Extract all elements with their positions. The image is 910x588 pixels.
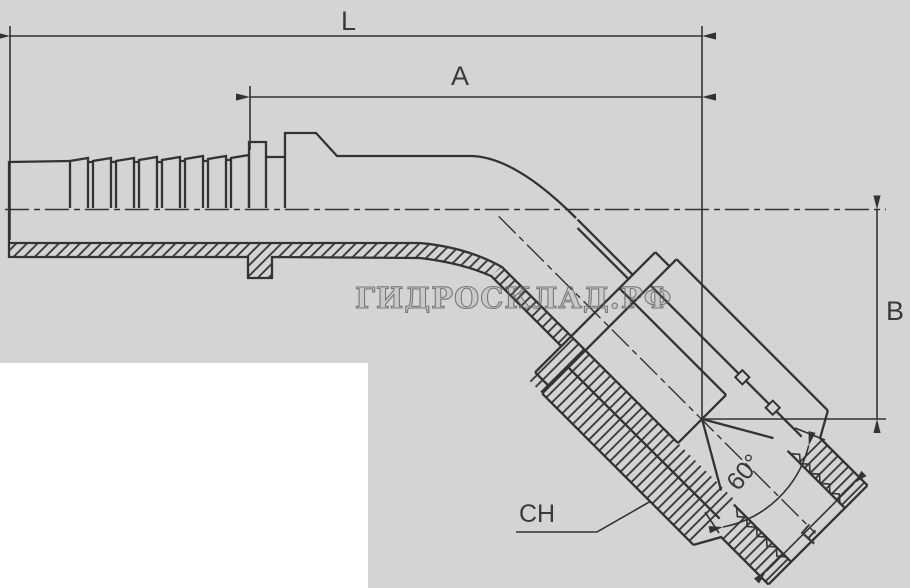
crimp-shoulder <box>285 133 470 208</box>
watermark-text: ГИДРОСКЛАД.РФ <box>355 281 672 315</box>
tail-neck <box>9 161 70 162</box>
technical-drawing: L A B CH 60° F ГИДРОСКЛАД.РФ <box>0 0 910 588</box>
crimp-collar <box>249 142 285 208</box>
dim-label-60deg: 60° <box>721 449 767 496</box>
dim-label-B: B <box>886 296 904 326</box>
drawing-canvas: L A B CH 60° F ГИДРОСКЛАД.РФ <box>0 0 910 588</box>
bend-outer-curve <box>470 156 576 218</box>
barrel-lines <box>573 220 632 279</box>
dim-label-A: A <box>451 61 469 91</box>
dim-label-F: F <box>796 520 827 550</box>
lower-wall-outline <box>9 257 420 278</box>
bend-section-hatching <box>420 243 502 276</box>
blank-panel <box>0 363 368 588</box>
barb-ridges <box>70 155 249 208</box>
elbow-leg-group <box>432 149 885 588</box>
dim-label-CH: CH <box>519 500 555 528</box>
tail-section-hatching <box>9 243 420 278</box>
dim-label-L: L <box>341 6 356 36</box>
